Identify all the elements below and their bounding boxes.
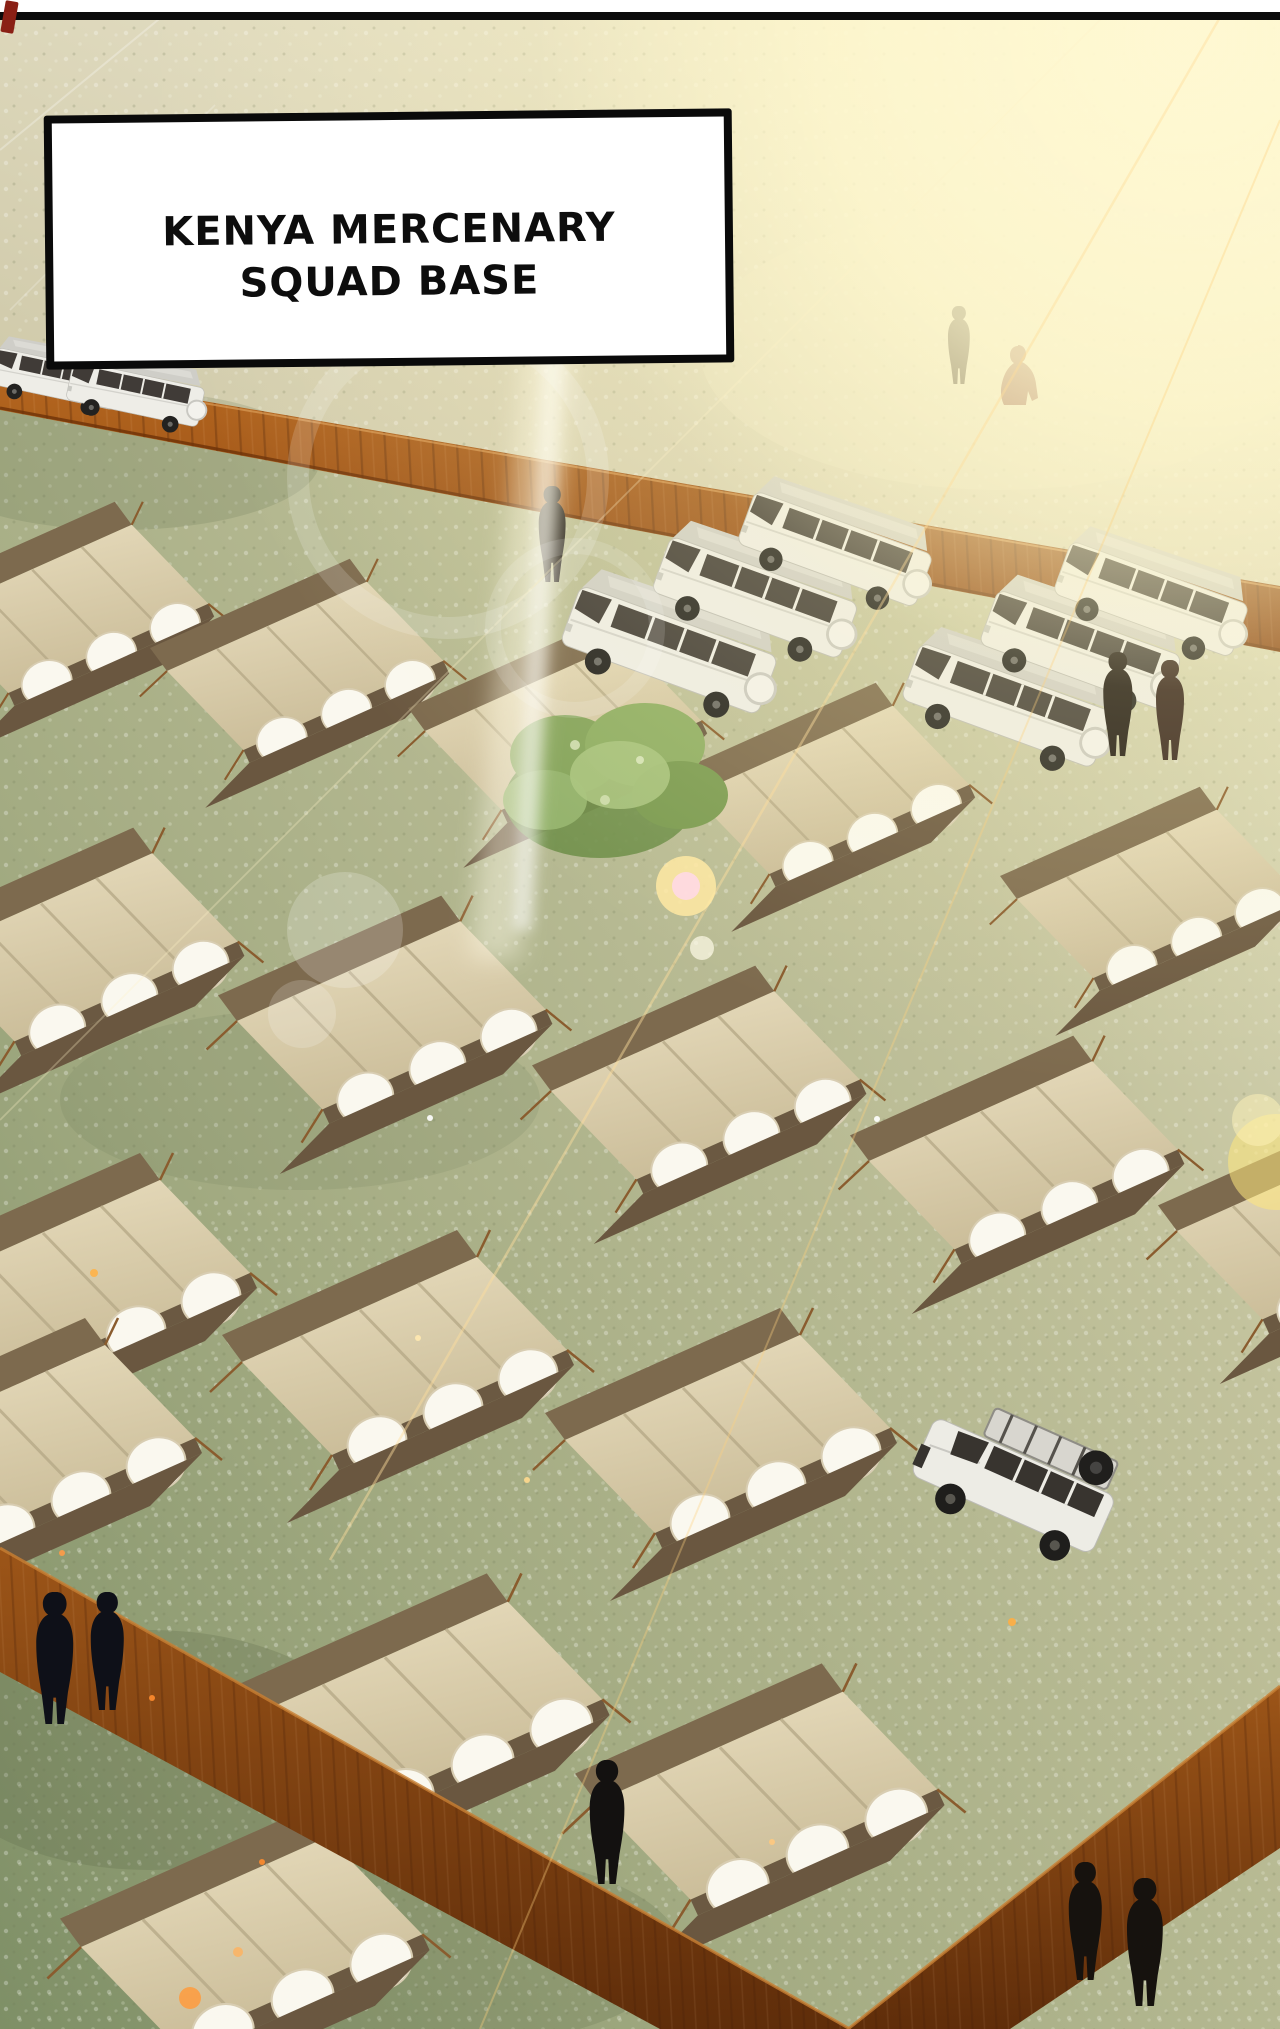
bokeh-orb <box>690 936 714 960</box>
panel-top-border <box>0 12 1280 20</box>
spark-particle <box>524 1477 530 1483</box>
spark-particle <box>874 1116 880 1122</box>
spark-particle <box>59 1550 65 1556</box>
caption-box: KENYA MERCENARY SQUAD BASE <box>44 108 735 369</box>
caption-line-1: KENYA MERCENARY <box>162 202 616 259</box>
spark-particle <box>427 1115 433 1121</box>
spark-particle <box>90 1269 98 1277</box>
comic-panel: KENYA MERCENARY SQUAD BASE <box>0 0 1280 2029</box>
bokeh-orb <box>179 1987 201 2009</box>
page-top-margin <box>0 0 1280 12</box>
spark-particle <box>769 1839 775 1845</box>
bokeh-orb <box>672 872 700 900</box>
spark-particle <box>259 1859 265 1865</box>
bokeh-orb <box>233 1947 243 1957</box>
spark-particle <box>1008 1618 1016 1626</box>
spark-particle <box>149 1695 155 1701</box>
caption-line-2: SQUAD BASE <box>239 254 539 309</box>
bokeh-orb <box>287 872 403 988</box>
spark-particle <box>415 1335 421 1341</box>
bokeh-orb <box>268 980 336 1048</box>
